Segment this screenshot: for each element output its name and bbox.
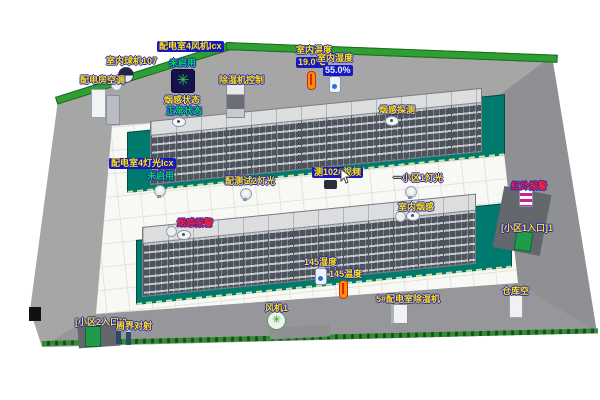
indoor-hygrometer-icon[interactable] bbox=[329, 76, 341, 93]
entrance1-label[interactable]: [小区1入口]1 bbox=[501, 223, 553, 234]
video-label[interactable]: 测102#视频 bbox=[312, 167, 363, 178]
light-bulb-icon[interactable] bbox=[405, 186, 417, 198]
indoor-humidity-label[interactable]: 室内湿度 bbox=[317, 53, 353, 64]
test-light-label[interactable]: 配测试2灯光 bbox=[225, 176, 275, 187]
thermometer-145-icon[interactable] bbox=[339, 280, 348, 299]
lights4-status: 未启用 bbox=[147, 171, 174, 182]
dome-camera-label[interactable]: 室内球机107 bbox=[106, 56, 157, 67]
indoor-humidity-value: 55.0% bbox=[323, 65, 353, 76]
cabinet-unit-icon[interactable] bbox=[106, 95, 120, 125]
warehouse-label[interactable]: 仓库空 bbox=[502, 286, 529, 297]
infrared-alarm-label[interactable]: 红外报警 bbox=[511, 181, 547, 192]
fan-unit-status: 未启用 bbox=[169, 58, 196, 69]
fan-unit-label[interactable]: 配电室4风机Icx bbox=[157, 41, 224, 52]
light-bulb-icon[interactable] bbox=[240, 188, 252, 200]
dehumidifier-5-label[interactable]: 5#配电室除湿机 bbox=[376, 294, 440, 305]
light-bulb-icon[interactable] bbox=[154, 185, 166, 197]
wall-fan-icon[interactable]: ✳ bbox=[171, 69, 195, 93]
ac-label[interactable]: 配电房空调 bbox=[80, 75, 125, 86]
perimeter-label[interactable]: 周界对射 bbox=[116, 321, 152, 332]
mouse-cursor-icon bbox=[340, 168, 352, 184]
zone-light-label[interactable]: 一小区1灯光 bbox=[393, 173, 443, 184]
lights4-label[interactable]: 配电室4灯光Icx bbox=[109, 158, 176, 169]
entrance2-door-icon[interactable] bbox=[85, 326, 101, 347]
fan1-label[interactable]: 风机1 bbox=[265, 303, 288, 314]
dehumidifier-control-icon[interactable] bbox=[226, 84, 245, 118]
wall-panel-icon bbox=[29, 307, 41, 321]
smoke-alarm-label[interactable]: 烟感报警 bbox=[177, 218, 213, 229]
warehouse-ac-icon[interactable] bbox=[509, 295, 523, 318]
hygrometer-145-icon[interactable] bbox=[315, 268, 327, 285]
alarm-ball-icon[interactable] bbox=[166, 226, 177, 237]
temp-145-label[interactable]: 145温度 bbox=[329, 269, 362, 280]
scada-room-view: ✳ ✳ 配电室4风机Icx 未启用 室内球机107 配电房空调 除湿机控制 烟感… bbox=[0, 0, 600, 400]
ac-unit-icon[interactable] bbox=[91, 89, 106, 118]
perimeter-beam-post-icon[interactable] bbox=[126, 330, 131, 345]
smoke-detect-label[interactable]: 烟感探测 bbox=[379, 105, 415, 116]
alarm-smoke-detector-icon[interactable] bbox=[177, 230, 191, 240]
indoor-smoke-label[interactable]: 室内烟感 bbox=[398, 202, 434, 213]
video-camera-icon[interactable] bbox=[324, 180, 337, 189]
rack-smoke-detector-icon[interactable] bbox=[385, 116, 399, 126]
smoke-status-label[interactable]: 烟感状态 bbox=[164, 95, 200, 106]
smoke-status-detector-icon[interactable] bbox=[172, 117, 186, 127]
smoke-status-value: 正常状态 bbox=[166, 106, 202, 117]
dehumidifier-5-icon[interactable] bbox=[391, 304, 408, 324]
dehumidifier-control-label[interactable]: 除湿机控制 bbox=[219, 75, 264, 86]
indoor-thermometer-icon[interactable] bbox=[307, 71, 316, 90]
humidity-145-label[interactable]: 145湿度 bbox=[304, 257, 337, 268]
